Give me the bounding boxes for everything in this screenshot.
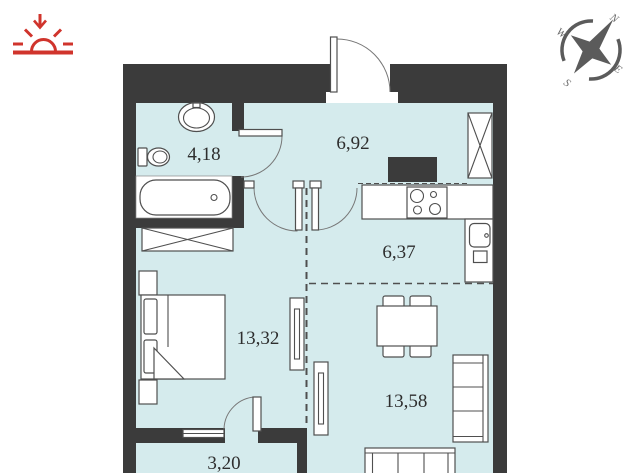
nightstand-top — [139, 271, 157, 295]
duct-block — [388, 157, 437, 182]
nightstand-bottom — [139, 380, 157, 404]
room-label-balcony: 3,20 — [207, 453, 240, 473]
bedroom-door-cap — [293, 181, 304, 188]
room-label-living-room: 13,58 — [385, 391, 428, 412]
bathtub — [136, 176, 232, 218]
sunrise-logo-icon — [13, 14, 73, 53]
vent-shaft — [468, 113, 492, 178]
sofa-bottom — [365, 448, 455, 473]
kitchen-sink-cabinet — [465, 219, 493, 282]
kitchen-sink-basin — [470, 224, 491, 248]
compass-east: E — [611, 62, 625, 76]
room-label-kitchen: 6,37 — [382, 242, 415, 263]
compass-rose-icon: N S W E — [532, 0, 640, 110]
toilet — [138, 148, 170, 166]
shelf-bedroom-side — [290, 298, 304, 370]
room-label-bathroom: 4,18 — [187, 144, 220, 165]
bedroom-door-jamb — [244, 181, 254, 188]
compass-south: S — [561, 77, 573, 90]
bedroom-door-leaf — [296, 188, 303, 230]
dining-table — [377, 306, 437, 346]
compass-needle — [554, 5, 634, 89]
wardrobe — [142, 228, 233, 251]
room-label-hallway: 6,92 — [336, 133, 369, 154]
entrance-jamb-right — [390, 92, 398, 103]
floor-plan-page: 4,18 6,92 6,37 13,32 13,58 3,20 N S W E — [0, 0, 640, 473]
sofa-right — [453, 355, 488, 442]
balcony-door-leaf — [253, 397, 261, 431]
room-label-bedroom: 13,32 — [237, 328, 280, 349]
sink — [179, 103, 215, 132]
kitchen-counter — [362, 185, 493, 219]
entrance-door-arc — [337, 39, 390, 92]
kitchen-door-cap — [310, 181, 321, 188]
bed — [141, 295, 225, 379]
bathroom-door-leaf — [239, 130, 282, 137]
shelf-living-side — [314, 362, 328, 435]
stove — [407, 187, 447, 218]
floor-plan-drawing: 4,18 6,92 6,37 13,32 13,58 3,20 N S W E — [0, 0, 640, 473]
entrance-jamb-left — [326, 92, 334, 103]
entrance-door — [331, 37, 391, 92]
pillow — [144, 299, 157, 334]
kitchen-door-leaf — [312, 188, 319, 230]
entrance-door-leaf — [331, 37, 338, 92]
